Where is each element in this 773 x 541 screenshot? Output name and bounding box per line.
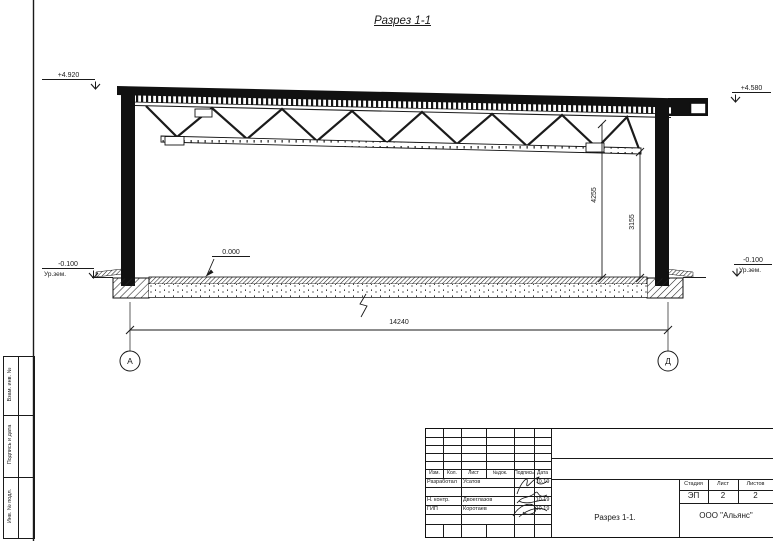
tb-doc-title: Разрез 1-1. [551,513,679,522]
tb-header-data: Дата [534,469,551,478]
tb-sheets-label: Листов [738,480,773,489]
title-block-line [486,524,487,537]
drawing-sheet: Разрез 1-1 +4.920 +4.580 0.000 -0.100 Ур… [0,0,773,541]
tb-stage-label: Стадия [679,480,708,489]
tb-sheet-label: Лист [708,480,738,489]
elevation-ground-right: -0.100 [734,257,772,265]
elevation-floor: 0.000 [212,249,250,257]
columns [121,91,669,286]
tb-header-ndok: №док. [486,469,514,478]
elevation-roof-right: +4.580 [732,85,771,93]
title-block-line [551,458,773,459]
foundation-and-floor [92,269,706,317]
title-block-line [426,461,551,462]
title-block-line [443,524,444,537]
tb-header-kol: Кол. [443,469,461,478]
dimension-clear-height: 3155 [629,199,636,245]
axis-label-left: А [123,356,137,366]
ground-level-label-right: Ур.зем. [739,267,761,274]
tb-row-date: 10.19 [534,478,551,487]
axis-label-right: Д [661,356,675,366]
tb-row-date: 10.19 [534,505,551,514]
roof-truss [135,106,671,155]
tb-stage-value: ЭП [679,491,708,500]
tb-header-izm: Изм. [426,469,443,478]
tb-company: ООО "Альянс" [679,511,773,520]
title-block-line [426,445,551,446]
dimension-truss-height: 4255 [591,172,598,218]
title-block-line [426,487,551,488]
tb-sheets-value: 2 [738,491,773,500]
title-block: Изм. Кол. Лист №док. Подпись Дата Разраб… [425,428,773,538]
ground-level-label-left: Ур.зем. [44,271,66,278]
tb-sheet-value: 2 [708,491,738,500]
title-block-line [426,437,551,438]
tb-row-name: Усатов [463,478,513,487]
title-block-line [426,453,551,454]
tb-header-podpis: Подпись [514,469,534,478]
dimension-span: 14240 [369,319,429,326]
tb-row-name: Коротаев [463,505,513,514]
side-stamp-inv-label: Инв. № подл. [4,476,17,536]
tb-row-role: Н. контр. [427,496,461,505]
title-block-line [426,514,551,515]
tb-row-name: Двоеглазов [463,496,513,505]
tb-row-role: Разработал [427,478,461,487]
side-stamp-vzam-label: Взам. инв. № [4,356,17,413]
title-block-line [679,503,773,504]
tb-header-list: Лист [461,469,486,478]
side-stamp-podpis-label: Подпись и дата [4,414,17,475]
side-stamp-divider [18,357,19,538]
elevation-roof-left: +4.920 [42,72,95,80]
title-block-line [426,524,551,525]
tb-row-role: ГИП [427,505,461,514]
span-dimension-line [120,302,678,371]
elevation-ground-left: -0.100 [42,261,94,269]
sheet-title: Разрез 1-1 [320,15,485,27]
tb-row-date: 10.19 [534,496,551,505]
